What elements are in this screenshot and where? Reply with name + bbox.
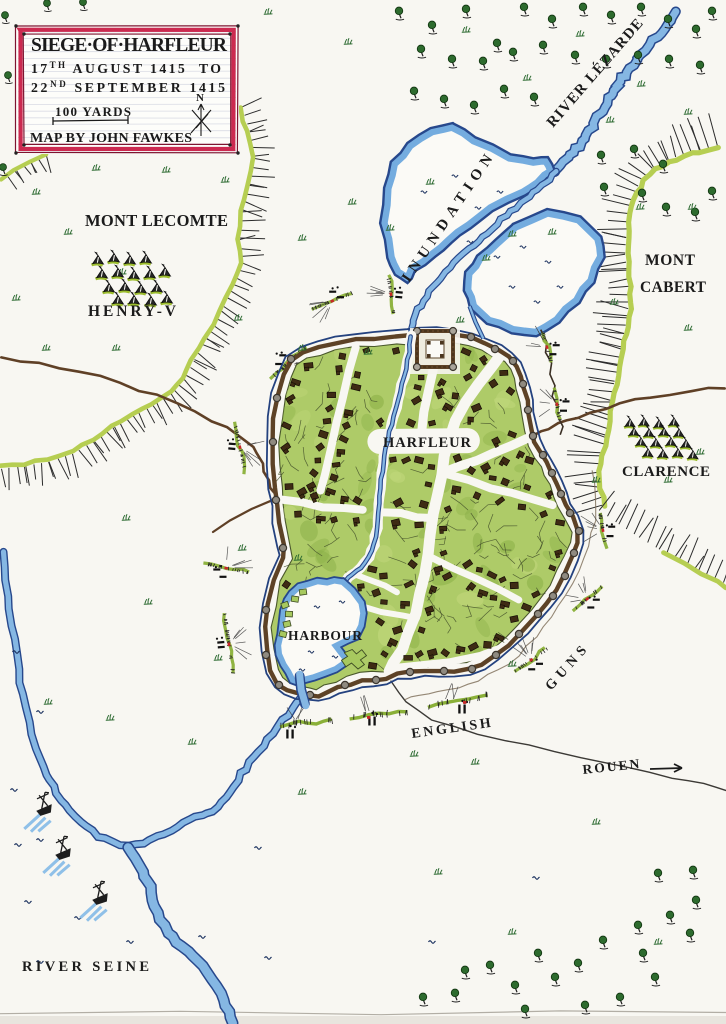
svg-text:HARFLEUR: HARFLEUR — [383, 435, 472, 451]
svg-text:CLARENCE: CLARENCE — [622, 464, 710, 480]
svg-text:SIEGE·OF·HARFLEUR: SIEGE·OF·HARFLEUR — [31, 35, 228, 56]
svg-text:MONT: MONT — [645, 252, 696, 269]
svg-text:RIVER SEINE: RIVER SEINE — [22, 959, 149, 975]
svg-text:100 YARDS: 100 YARDS — [55, 104, 131, 119]
svg-text:MONT LECOMTE: MONT LECOMTE — [85, 211, 228, 230]
svg-text:MAP BY JOHN FAWKES: MAP BY JOHN FAWKES — [30, 131, 192, 146]
svg-text:CABERT: CABERT — [640, 279, 707, 296]
svg-text:N: N — [196, 92, 204, 104]
svg-text:HARBOUR: HARBOUR — [288, 628, 362, 643]
